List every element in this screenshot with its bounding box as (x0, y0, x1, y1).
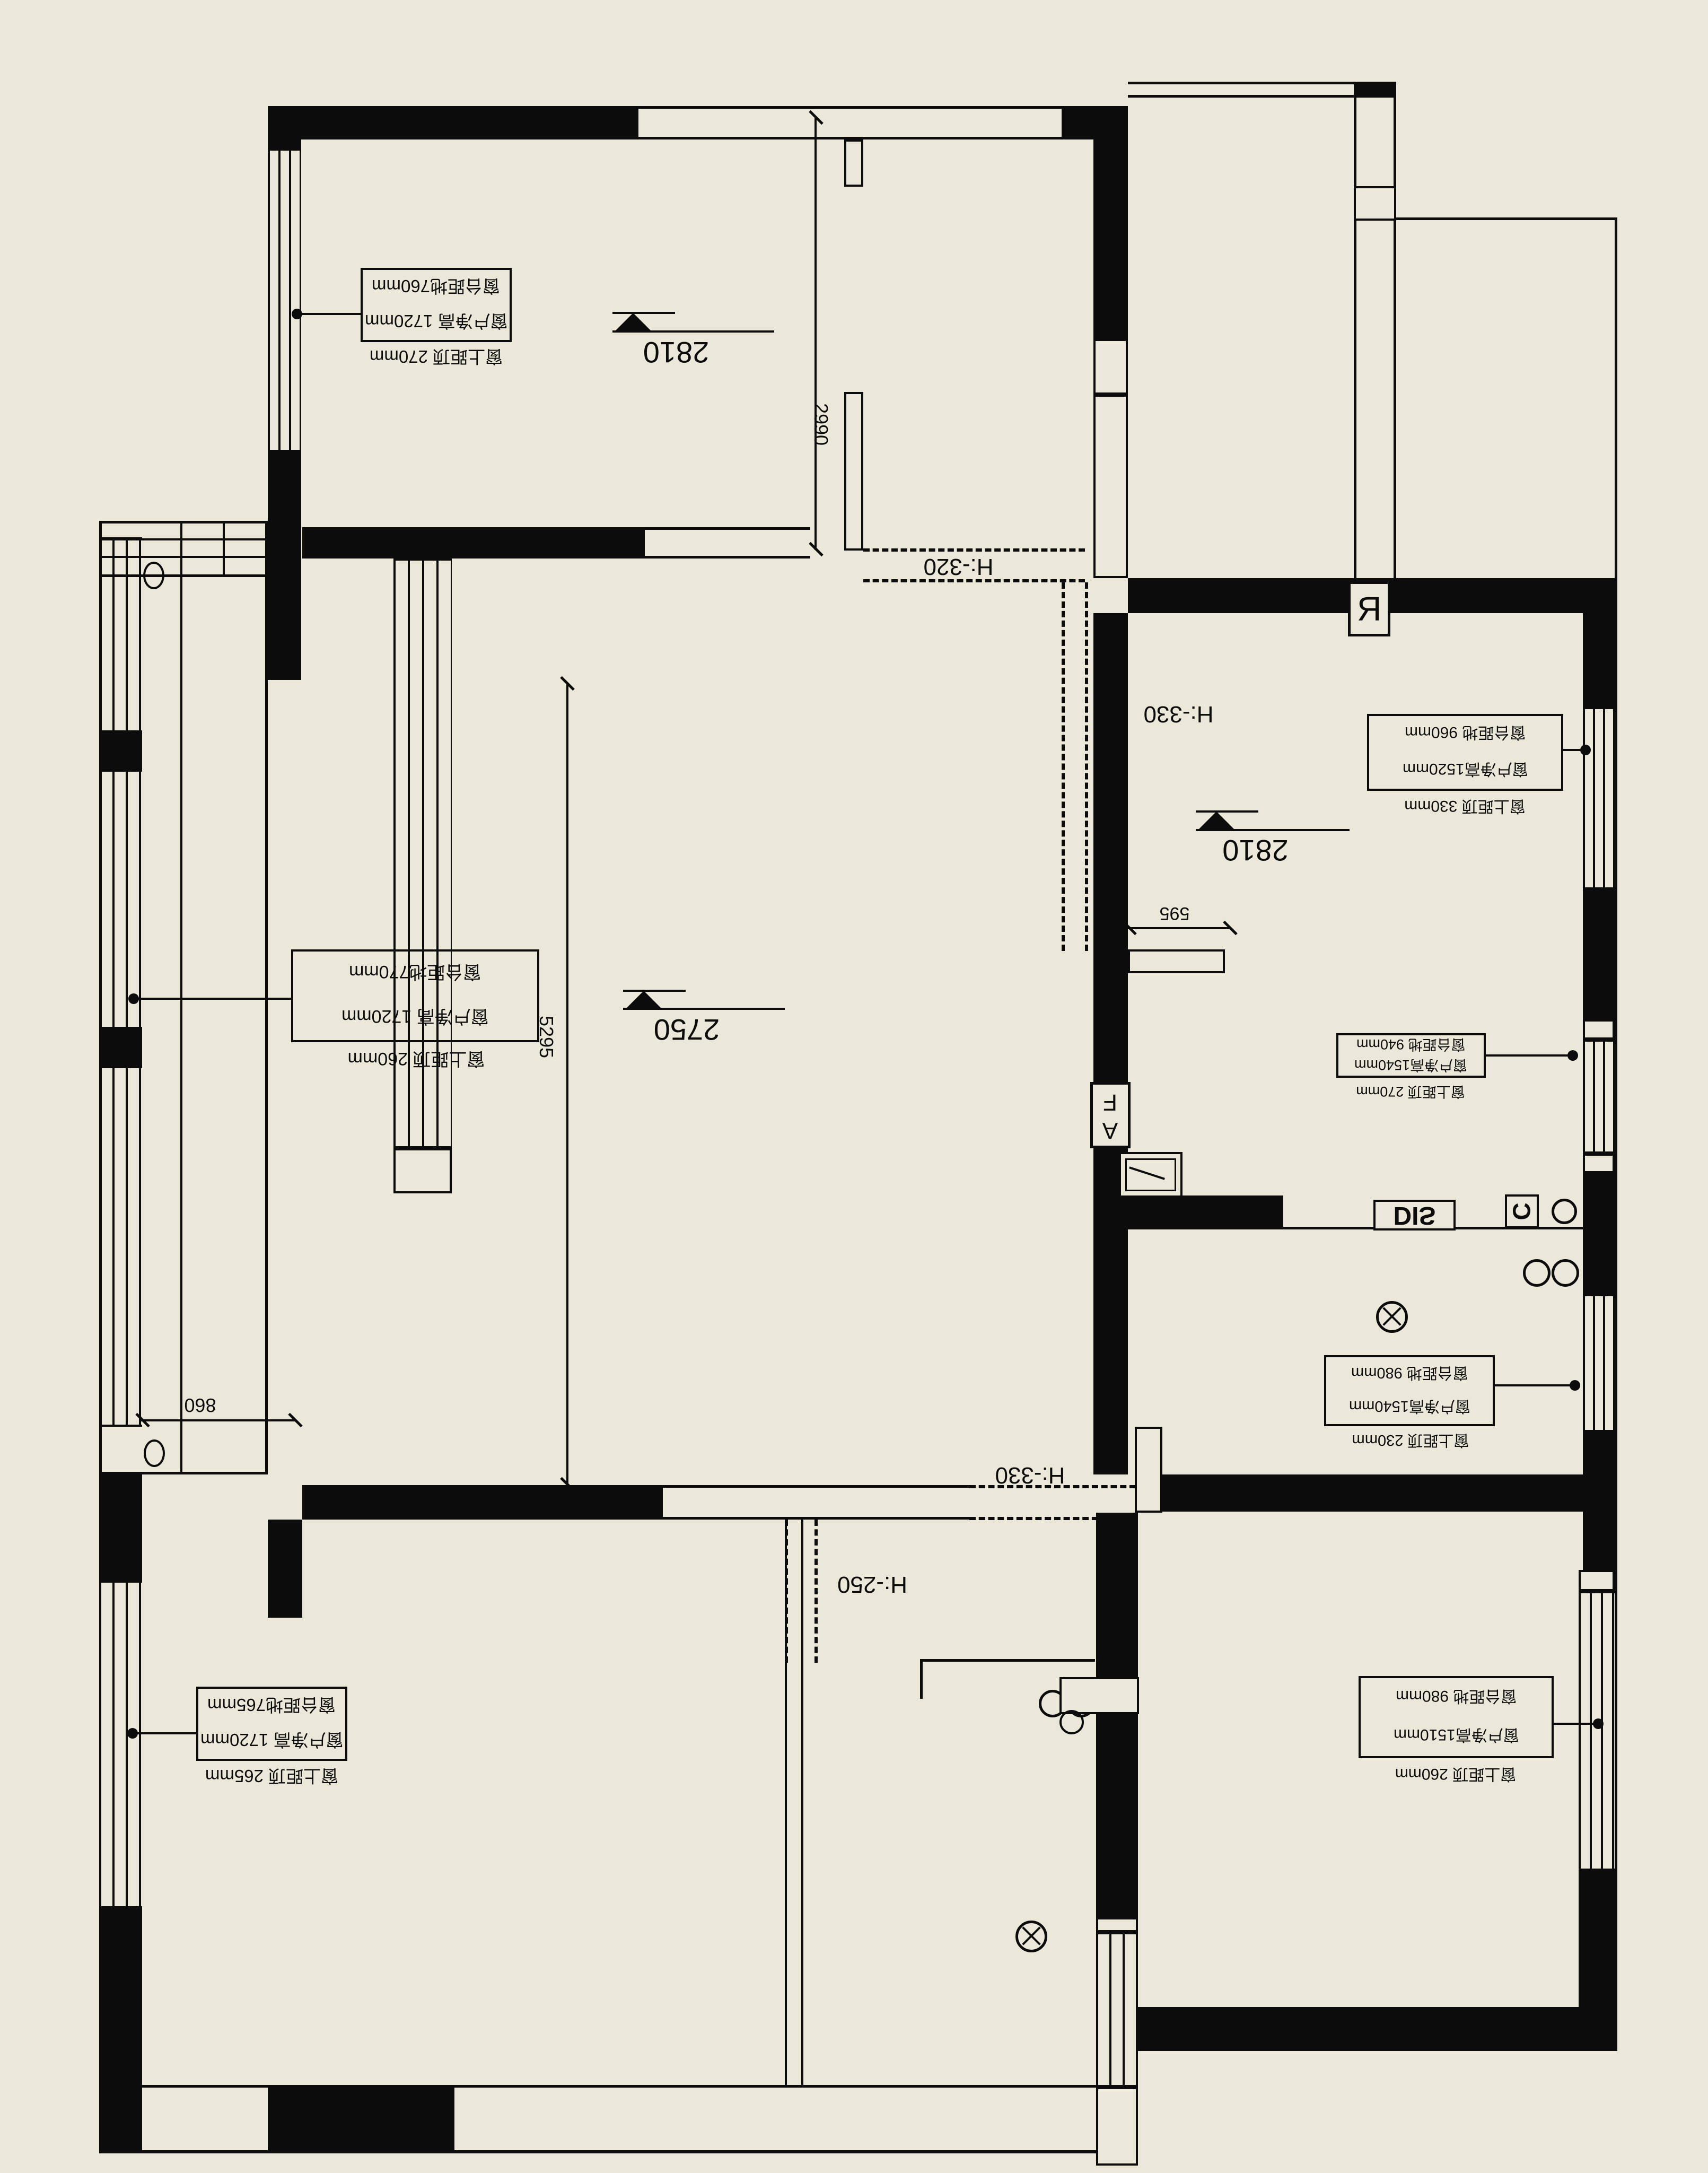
floor-height-label: H:-320 (901, 553, 1015, 580)
downlight (1552, 1199, 1577, 1224)
meter-letter: R (1357, 589, 1381, 629)
window-strip (1579, 1591, 1615, 1871)
level-value: 2750 (639, 1014, 734, 1046)
wall-segment (268, 452, 301, 680)
wall-segment (1354, 82, 1396, 98)
wall-segment (302, 527, 645, 558)
marker-letters: AF (1097, 1087, 1124, 1144)
floor-height-label: H:-250 (819, 1571, 925, 1598)
wall-segment (1583, 578, 1615, 707)
annotation-row: 窗上距顶 270mm (366, 345, 506, 371)
wall-line (99, 556, 268, 558)
dimension-line (141, 1419, 295, 1421)
annotation-row: 窗户净高1510mm (1394, 1725, 1519, 1748)
annotation-row: 窗台距地 980mm (1396, 1686, 1517, 1709)
counter-line (920, 1659, 1095, 1662)
wall-line (1128, 82, 1354, 84)
annotation-row: 窗上距顶 260mm (297, 1046, 536, 1076)
wall-line (1394, 98, 1396, 578)
window-strip (268, 149, 301, 452)
wall-line (785, 1520, 787, 2088)
leader-line (133, 1732, 196, 1734)
annotation-row: 窗上距顶 265mm (202, 1764, 342, 1791)
wall-line (801, 1520, 803, 2088)
window-annotation: 窗台距地765mm 窗户净高 1720mm (196, 1687, 347, 1761)
wall-segment (268, 2088, 454, 2153)
window-annotation: 窗台距地 960mm 窗户净高1520mm (1367, 714, 1563, 791)
annotation-row: 窗台距地770mm (349, 961, 481, 987)
floor-plan: 窗台距地760mm 窗户净高 1720mm 窗上距顶 270mm 2810 29… (0, 0, 1708, 2173)
toilet-tank (1059, 1677, 1139, 1714)
leader-dot (1567, 1050, 1578, 1061)
leader-line (297, 313, 361, 315)
wall-line (223, 521, 225, 574)
wall-segment (1583, 1173, 1615, 1294)
annotation-row: 窗户净高1520mm (1403, 759, 1528, 782)
wall-segment (1162, 1474, 1617, 1512)
marker-box: C (1505, 1194, 1539, 1228)
window-strip (1583, 707, 1615, 889)
dimension-line (566, 684, 568, 1485)
level-value: 2810 (1209, 835, 1302, 866)
window-jamb (1579, 1570, 1615, 1591)
window-strip (1096, 1932, 1138, 2087)
threshold-line (663, 1485, 969, 1488)
wall-segment (1138, 2007, 1617, 2051)
level-line (1196, 829, 1350, 831)
dimension-line (1128, 927, 1230, 929)
level-line (612, 330, 774, 333)
partition-wall (844, 392, 863, 551)
wall-line (1128, 95, 1354, 98)
annotation-row: 窗户净高 1720mm (200, 1729, 344, 1754)
marker-letter: C (1508, 1202, 1536, 1220)
leader-line (1554, 1723, 1597, 1725)
wall-opening-line (645, 556, 810, 558)
wall-segment (268, 106, 638, 139)
level-value: 2810 (628, 337, 724, 369)
dimension-line (814, 118, 817, 550)
outer-wall-line (99, 2150, 1129, 2153)
wall-segment (1583, 1512, 1615, 1570)
floor-change-line (1062, 582, 1065, 951)
counter-line (920, 1659, 923, 1699)
wall-thin (1093, 395, 1128, 578)
wall-niche (1093, 339, 1128, 395)
leader-dot (1580, 745, 1591, 755)
wall-segment (1093, 106, 1128, 339)
annotation-row: 窗上距顶 260mm (1365, 1762, 1546, 1790)
window-mullion (99, 1027, 142, 1068)
dimension-value: 860 (170, 1394, 231, 1416)
wall-stub (1128, 949, 1225, 973)
wall-opening-line (645, 527, 810, 530)
toilet-bowl (1059, 1710, 1084, 1734)
window-annotation: 窗台距地 940mm 窗户净高1540mm (1336, 1033, 1486, 1078)
floor-change-line (814, 1520, 818, 1663)
annotation-row: 窗台距地 980mm (1351, 1363, 1468, 1385)
window-annotation: 窗台距地770mm 窗户净高 1720mm (291, 949, 539, 1042)
wall-segment (1579, 1871, 1615, 2010)
wall-line (99, 574, 268, 577)
wall-thin (1096, 2087, 1138, 2166)
annotation-row: 窗台距地765mm (207, 1694, 336, 1719)
window-mullion (99, 730, 142, 772)
wall-segment (1093, 1195, 1283, 1229)
meter-box: R (1348, 581, 1390, 636)
leader-line (1495, 1384, 1574, 1386)
wall-line (1396, 217, 1615, 220)
annotation-row: 窗上距顶 230mm (1331, 1429, 1490, 1454)
appliance-box: DIS (1373, 1200, 1456, 1231)
dimension-value: 595 (1145, 902, 1204, 925)
annotation-row: 窗台距地760mm (372, 275, 500, 300)
annotation-row: 窗户净高 1720mm (341, 1005, 489, 1031)
window-annotation: 窗台距地760mm 窗户净高 1720mm (361, 268, 512, 342)
window-strip (1583, 1294, 1615, 1432)
column-symbol (144, 1439, 165, 1467)
wall-segment (99, 1474, 142, 1581)
level-line (623, 1008, 785, 1010)
annotation-row: 窗户净高1540mm (1354, 1056, 1467, 1077)
window-strip (1583, 1040, 1615, 1154)
wall-segment (268, 1520, 302, 1618)
annotation-row: 窗上距顶 270mm (1342, 1081, 1479, 1105)
wall-segment (1096, 1742, 1138, 1917)
level-triangle (626, 991, 662, 1009)
wall-segment (1583, 1432, 1615, 1474)
basin (1523, 1259, 1551, 1287)
leader-dot (1593, 1718, 1604, 1729)
appliance-label: DIS (1393, 1201, 1435, 1230)
level-triangle (1198, 811, 1234, 830)
annotation-row: 窗户净高1540mm (1349, 1397, 1470, 1419)
column-symbol (143, 562, 164, 589)
wall-segment (99, 1908, 142, 2153)
floor-change-line (863, 548, 1085, 552)
window-strip (99, 1581, 142, 1908)
floor-height-label: H:-330 (973, 1462, 1087, 1488)
wall-opening-line (638, 106, 1062, 109)
window-annotation: 窗台距地 980mm 窗户净高1540mm (1324, 1355, 1495, 1426)
wall-segment (1093, 1229, 1128, 1474)
window-jamb (1583, 1154, 1615, 1173)
window-jamb (1583, 1019, 1615, 1040)
window-jamb (1096, 1917, 1138, 1932)
wall-line (1354, 98, 1356, 578)
leader-line (134, 998, 291, 1000)
outer-wall-line (1615, 217, 1617, 2051)
marker-box: AF (1090, 1082, 1131, 1148)
floor-change-line (1085, 582, 1088, 951)
window-annotation: 窗台距地 980mm 窗户净高1510mm (1359, 1676, 1554, 1758)
annotation-row: 窗台距地 940mm (1356, 1035, 1466, 1056)
leader-line (1486, 1054, 1572, 1057)
wall-segment (268, 106, 301, 149)
wall-segment (302, 1485, 663, 1520)
dimension-value: 2990 (810, 382, 831, 467)
window-sill (393, 1148, 452, 1193)
door-jamb (1135, 1427, 1162, 1513)
window-strip (99, 537, 142, 1427)
door-jamb (844, 139, 863, 187)
wall-line (99, 538, 268, 540)
annotation-row: 窗台距地 960mm (1405, 722, 1526, 746)
leader-dot (1570, 1380, 1580, 1391)
floor-height-label: H:-330 (1122, 700, 1236, 728)
wall-segment (1583, 889, 1615, 1019)
annotation-row: 窗户净高 1720mm (365, 310, 508, 335)
annotation-row: 窗上距顶 330mm (1373, 795, 1556, 821)
wall-niche (1354, 186, 1396, 221)
basin (1552, 1259, 1579, 1287)
wall-line (99, 521, 268, 523)
level-triangle (615, 313, 651, 331)
